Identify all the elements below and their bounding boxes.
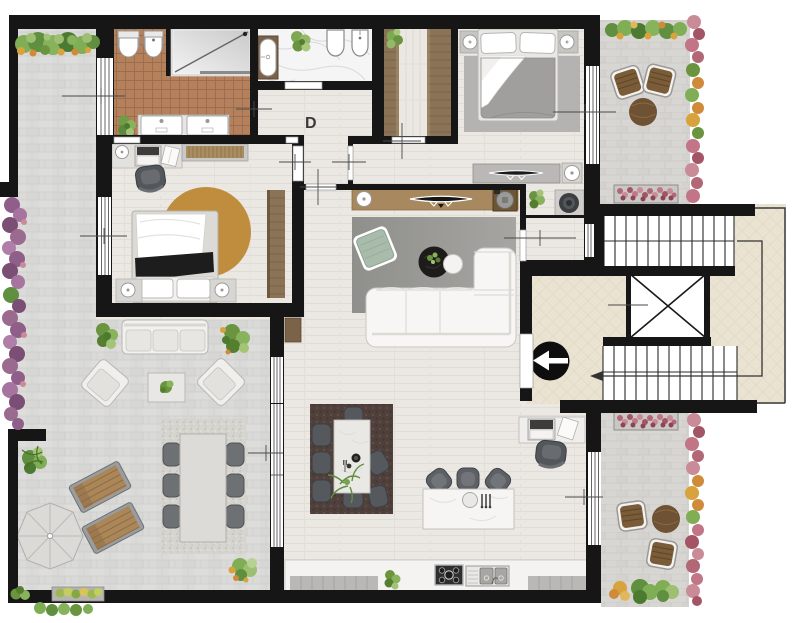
svg-text:D: D bbox=[305, 115, 317, 132]
